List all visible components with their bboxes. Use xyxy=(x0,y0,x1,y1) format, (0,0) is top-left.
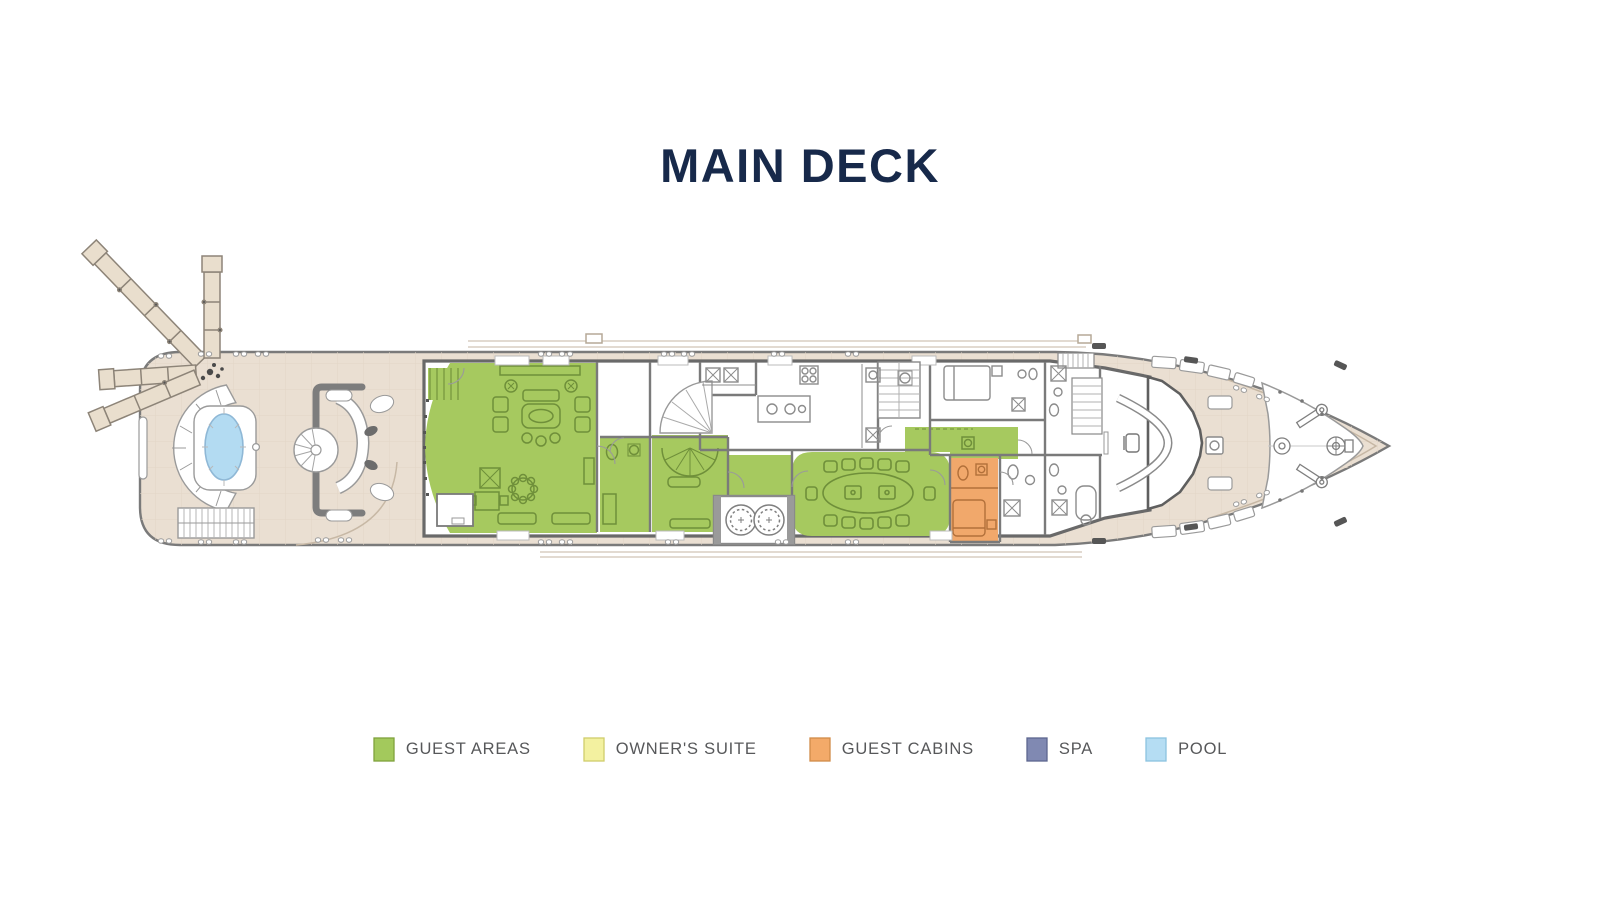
salon-vestibule-stairs xyxy=(428,368,464,400)
legend-label: GUEST CABINS xyxy=(842,740,974,759)
pool-swatch-icon xyxy=(1145,737,1167,762)
transom-slot xyxy=(139,417,147,479)
spa-swatch-icon xyxy=(1026,737,1048,762)
legend-label: GUEST AREAS xyxy=(406,740,531,759)
aft-fan-stair xyxy=(294,428,338,472)
deck-plan xyxy=(0,0,1600,900)
legend: GUEST AREAS OWNER'S SUITE GUEST CABINS S… xyxy=(0,737,1600,762)
legend-item-spa: SPA xyxy=(1026,737,1093,762)
mast-base xyxy=(1206,437,1223,454)
legend-label: POOL xyxy=(1178,740,1227,759)
legend-label: SPA xyxy=(1059,740,1093,759)
twin-skylight-bay xyxy=(714,496,794,544)
alcove xyxy=(437,494,473,526)
owners-suite-swatch-icon xyxy=(583,737,605,762)
guest-cabins-swatch-icon xyxy=(809,737,831,762)
aft-bench-pad-top xyxy=(326,390,352,401)
pool-ladder xyxy=(253,444,260,451)
legend-item-guest-cabins: GUEST CABINS xyxy=(809,737,974,762)
aft-bench-pad-bottom xyxy=(326,510,352,521)
pool xyxy=(205,414,243,480)
legend-item-pool: POOL xyxy=(1145,737,1227,762)
legend-item-owners-suite: OWNER'S SUITE xyxy=(583,737,757,762)
gangway-arm-up xyxy=(202,256,222,358)
gangway-arm-upleft xyxy=(82,240,208,369)
guest-cabin-orange xyxy=(950,458,998,542)
legend-label: OWNER'S SUITE xyxy=(616,740,757,759)
green-day-room xyxy=(600,438,650,532)
legend-item-guest-areas: GUEST AREAS xyxy=(373,737,531,762)
guest-areas-swatch-icon xyxy=(373,737,395,762)
dining-table xyxy=(823,473,913,513)
